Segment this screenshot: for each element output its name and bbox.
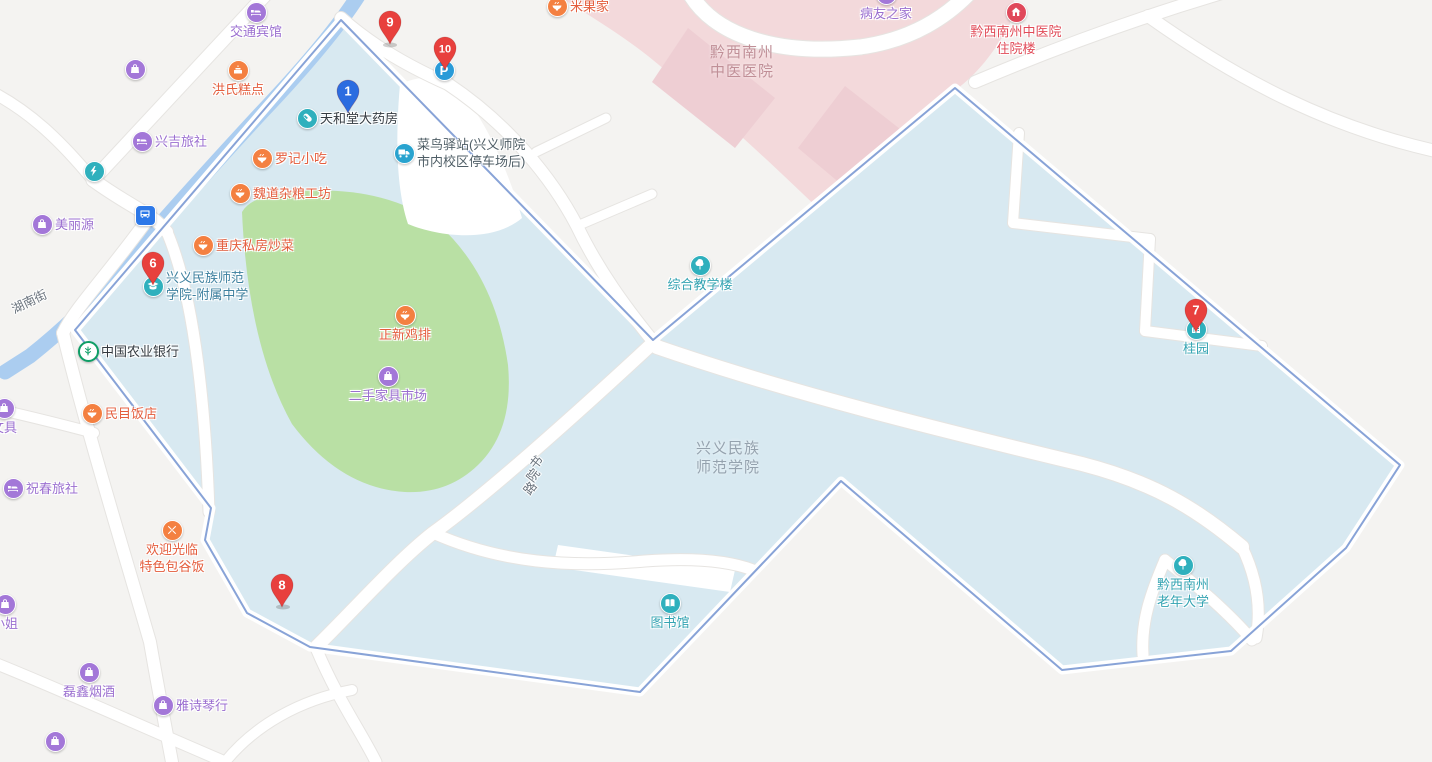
map-pin-1[interactable]: 1 [335, 78, 361, 114]
map-pin-7[interactable]: 7 [1183, 297, 1209, 333]
map-canvas[interactable]: 黔西南州中医医院兴义民族师范学院湖南街书院路 交通宾馆黔西南州烟草公司兴义市洪氏… [0, 0, 1432, 762]
pin-layer: 9101678 [0, 0, 1432, 762]
map-pin-6[interactable]: 6 [140, 250, 166, 286]
svg-text:9: 9 [386, 15, 393, 30]
svg-text:8: 8 [278, 578, 285, 593]
map-pin-9[interactable]: 9 [377, 9, 403, 45]
map-pin-8[interactable]: 8 [269, 572, 295, 608]
svg-text:6: 6 [149, 256, 156, 271]
svg-text:1: 1 [344, 84, 351, 99]
svg-text:7: 7 [1192, 303, 1199, 318]
svg-text:10: 10 [439, 44, 451, 56]
map-pin-10[interactable]: 10 [432, 35, 458, 71]
